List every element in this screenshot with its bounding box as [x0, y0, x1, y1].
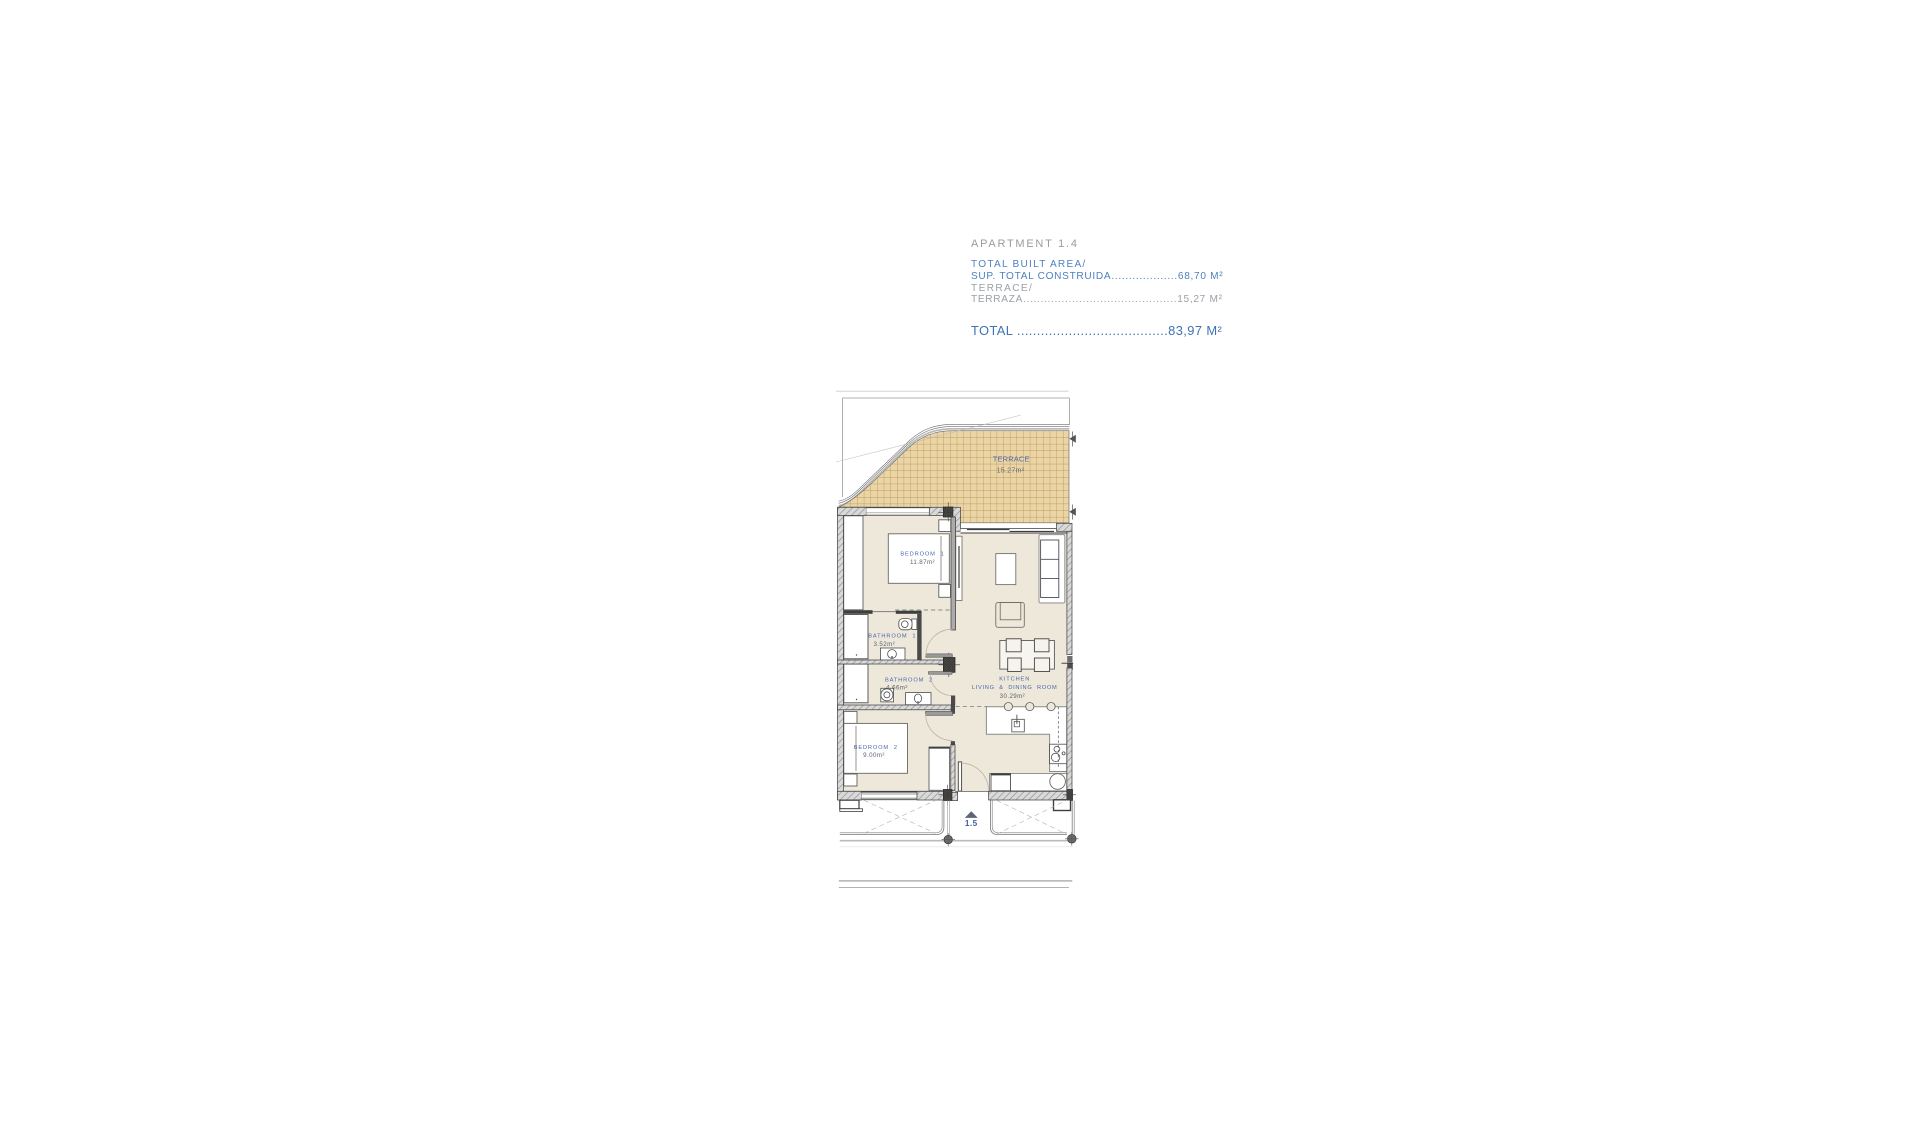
- svg-text:LIVING & DINING ROOM: LIVING & DINING ROOM: [972, 685, 1058, 691]
- svg-text:BATHROOM 1: BATHROOM 1: [868, 633, 916, 639]
- svg-text:BEDROOM 1: BEDROOM 1: [900, 551, 944, 557]
- svg-text:4.66m²: 4.66m²: [886, 684, 908, 691]
- svg-text:BEDROOM 2: BEDROOM 2: [854, 745, 898, 751]
- svg-text:30.29m²: 30.29m²: [1000, 693, 1026, 700]
- svg-text:KITCHEN: KITCHEN: [999, 677, 1030, 683]
- svg-text:9.00m²: 9.00m²: [863, 752, 885, 759]
- svg-text:11.87m²: 11.87m²: [910, 559, 935, 566]
- svg-text:3.52m²: 3.52m²: [873, 641, 895, 648]
- svg-text:TERRACE: TERRACE: [993, 455, 1030, 464]
- svg-text:BATHROOM 2: BATHROOM 2: [885, 677, 933, 683]
- svg-text:1.5: 1.5: [965, 819, 978, 828]
- svg-text:15.27m²: 15.27m²: [997, 468, 1025, 475]
